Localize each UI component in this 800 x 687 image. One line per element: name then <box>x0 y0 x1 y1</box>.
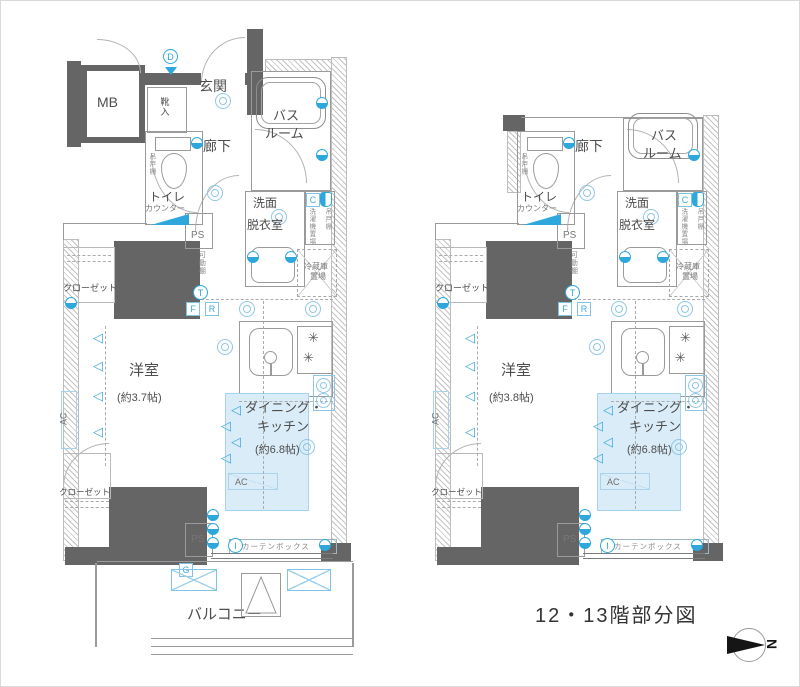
cone-icon: ◁ <box>593 451 603 464</box>
marker-f: F <box>558 302 572 316</box>
room-label-wash2: 脱衣室 <box>247 219 283 232</box>
ac-label: AC <box>235 477 248 487</box>
downlight-icon <box>320 192 332 207</box>
ceiling-light-icon <box>239 301 255 317</box>
room-label-bedroom: 洋室 <box>129 363 159 379</box>
marker-t: T <box>193 285 208 300</box>
evacuation-hatch-icon <box>241 573 281 617</box>
marker-i-label: I <box>234 541 237 551</box>
burner-icon: ✳ <box>303 351 314 364</box>
curtain-box-label: カーテンボックス <box>614 543 682 551</box>
wall-light-icon <box>579 509 591 521</box>
room-label-genkan: 玄関 <box>199 79 227 94</box>
wall-light-icon <box>207 509 219 521</box>
ac-wall-box: AC <box>433 391 449 449</box>
wall <box>437 547 483 565</box>
north-label: N <box>764 639 780 649</box>
partition-guide <box>477 326 478 466</box>
cone-icon: ◁ <box>93 331 103 344</box>
label-closet-lower: クローゼット <box>59 488 110 497</box>
north-arrow-icon <box>727 636 765 654</box>
counter-wedge-icon <box>151 214 189 225</box>
door-sensor-icon <box>165 67 177 75</box>
label-closet-upper: クローゼット <box>435 284 489 293</box>
room-label-dk1: ダイニング・ <box>617 401 695 415</box>
room-label-dk1: ダイニング・ <box>245 401 323 415</box>
boundary-line <box>435 223 436 240</box>
room-label-bath2: ルーム <box>265 127 304 141</box>
marker-c: C <box>678 193 692 207</box>
balcony-rail <box>352 563 354 647</box>
window <box>211 553 333 559</box>
label-hanging-shelf: 吊戸棚 <box>323 208 330 231</box>
burner-icon: ✳ <box>675 351 686 364</box>
ceiling-light-icon <box>207 185 223 201</box>
marker-r: R <box>577 302 591 316</box>
label-movable-shelf: 可動棚 <box>570 251 577 275</box>
faucet-stem <box>642 363 644 375</box>
label-bedroom-size: (約3.8帖) <box>489 393 534 405</box>
ceiling-light-icon <box>688 378 703 393</box>
mb-door-arc <box>97 39 141 73</box>
label-ps: PS <box>191 535 204 546</box>
room-label-hall: 廊下 <box>203 139 231 154</box>
marker-c-label: C <box>682 195 689 205</box>
marker-t-label: T <box>198 288 204 298</box>
marker-i: I <box>600 538 615 553</box>
downlight-icon <box>692 192 704 207</box>
room-label-bedroom: 洋室 <box>501 363 531 379</box>
ceiling-light-icon <box>671 439 687 455</box>
closet-shelf-line <box>437 507 481 508</box>
curtain-box-label: カーテンボックス <box>242 543 310 551</box>
balcony-line <box>151 638 353 639</box>
room-label-dk2: キッチン <box>257 420 309 434</box>
room-label-wash1: 洗面 <box>625 197 649 210</box>
plan-caption: 12・13階部分図 <box>535 599 698 628</box>
cone-icon: ◁ <box>231 435 241 448</box>
label-dk-size: (約6.8帖) <box>255 445 300 457</box>
wall-light-icon <box>579 523 591 535</box>
cone-icon: ◁ <box>221 419 231 432</box>
cone-icon: ◁ <box>231 403 241 416</box>
wall-light-icon <box>65 297 77 309</box>
wall-light-icon <box>691 539 703 551</box>
cone-icon: ◁ <box>93 425 103 438</box>
boundary-line <box>435 223 519 224</box>
ceiling-light-icon <box>305 301 321 317</box>
cone-icon: ◁ <box>93 359 103 372</box>
closet-shelf-line <box>67 261 111 262</box>
wall <box>65 547 111 565</box>
closet-shelf-line <box>65 501 109 502</box>
label-dk-size: (約6.8帖) <box>627 445 672 457</box>
ceiling-light-icon <box>215 93 231 109</box>
label-hanging-shelf: 吊戸棚 <box>147 153 154 176</box>
entrance-door-arc <box>201 37 245 83</box>
label-washer: 洗濯機置場 <box>307 208 314 246</box>
wall-light-icon <box>437 297 449 309</box>
window <box>583 553 705 559</box>
ac-wall-label: AC <box>432 412 441 425</box>
ceiling-light-icon <box>611 301 627 317</box>
room-label-wash2: 脱衣室 <box>619 219 655 232</box>
marker-i-label: I <box>606 541 609 551</box>
marker-t: T <box>565 285 580 300</box>
marker-f-label: F <box>190 304 196 314</box>
wall-light-icon <box>688 149 700 161</box>
wall-light-icon <box>191 137 203 149</box>
closet-shelf-line <box>437 501 481 502</box>
balcony-line <box>151 654 353 655</box>
room-label-shoebox: 靴入 <box>159 97 168 117</box>
marker-r-label: R <box>209 304 216 314</box>
wall-light-icon <box>207 537 219 549</box>
ceiling-light-icon <box>579 185 595 201</box>
ac-unit-box: AC <box>600 473 650 490</box>
wall-light-icon <box>207 523 219 535</box>
closet-shelf-line <box>65 507 109 508</box>
label-hanging-shelf: 吊戸棚 <box>519 153 526 176</box>
cone-icon: ◁ <box>465 359 475 372</box>
wall-light-icon <box>316 97 328 109</box>
room-label-toilet: トイレ <box>149 191 185 204</box>
cone-icon: ◁ <box>465 425 475 438</box>
marker-d: D <box>163 49 178 64</box>
ceiling-light-icon <box>677 301 693 317</box>
boundary-line <box>63 223 147 224</box>
burner-icon: ✳ <box>308 331 319 344</box>
exterior-wall-hatched <box>331 57 347 561</box>
wall-light-icon <box>247 251 259 263</box>
ac-unit-box: AC <box>228 473 278 490</box>
exterior-wall-hatched <box>703 115 719 561</box>
ac-wall-label: AC <box>60 412 69 425</box>
marker-i: I <box>228 538 243 553</box>
balcony-rail <box>95 563 97 647</box>
label-bedroom-size: (約3.7帖) <box>117 393 162 405</box>
room-label-hall: 廊下 <box>575 139 603 154</box>
label-counter: カウンター <box>517 205 557 213</box>
marker-d-label: D <box>167 52 174 62</box>
label-washer: 洗濯機置場 <box>679 208 686 246</box>
ceiling-light-icon <box>299 439 315 455</box>
marker-t-label: T <box>570 288 576 298</box>
wall-light-icon <box>579 537 591 549</box>
room-label-dk2: キッチン <box>629 420 681 434</box>
wall-light-icon <box>563 137 575 149</box>
wall-light-icon <box>619 251 631 263</box>
ceiling-guide <box>573 299 705 300</box>
label-fridge1: 冷蔵庫 <box>676 263 700 271</box>
room-label-wash1: 洗面 <box>253 197 277 210</box>
room-label-bath1: バス <box>651 129 677 143</box>
wall-light-icon <box>285 251 297 263</box>
marker-c: C <box>306 193 320 207</box>
marker-f: F <box>186 302 200 316</box>
cone-icon: ◁ <box>593 419 603 432</box>
label-fridge1: 冷蔵庫 <box>304 263 328 271</box>
label-ps: PS <box>563 535 576 546</box>
closet-shelf-line <box>439 255 483 256</box>
label-fridge2: 置場 <box>310 273 326 281</box>
balcony-equipment-icon <box>287 569 331 591</box>
counter-wedge-icon <box>523 214 561 225</box>
label-ps: PS <box>191 231 204 242</box>
marker-f-label: F <box>562 304 568 314</box>
wall-light-icon <box>316 149 328 161</box>
room-label-bath2: ルーム <box>643 147 682 161</box>
label-fridge2: 置場 <box>682 273 698 281</box>
balcony-line <box>151 646 353 647</box>
label-counter: カウンター <box>145 205 185 213</box>
room-label-mb: MB <box>97 95 118 110</box>
ac-wall-box: AC <box>61 391 77 449</box>
toilet-tank <box>527 137 563 151</box>
floorplan-sheet: ✳ ✳ AC AC カーテンボックス <box>0 0 800 687</box>
boundary-line <box>63 223 64 240</box>
cone-icon: ◁ <box>465 331 475 344</box>
wall <box>67 61 81 147</box>
ceiling-guide <box>201 299 333 300</box>
ceiling-light-icon <box>217 339 233 355</box>
ac-label: AC <box>607 477 620 487</box>
room-label-bath1: バス <box>273 109 299 123</box>
partition-guide <box>105 326 106 466</box>
balcony-equipment-icon <box>171 569 217 591</box>
cone-icon: ◁ <box>603 403 613 416</box>
label-hanging-shelf: 吊戸棚 <box>695 208 702 231</box>
label-closet-upper: クローゼット <box>63 284 117 293</box>
faucet-stem <box>270 363 272 375</box>
cone-icon: ◁ <box>221 451 231 464</box>
label-closet-lower: クローゼット <box>431 488 482 497</box>
closet-shelf-line <box>439 261 483 262</box>
label-movable-shelf: 可動棚 <box>198 251 205 275</box>
closet-shelf-line <box>67 255 111 256</box>
marker-c-label: C <box>310 195 317 205</box>
label-ps: PS <box>563 231 576 242</box>
marker-r: R <box>205 302 219 316</box>
toilet-tank <box>155 137 191 151</box>
balcony-line <box>97 561 353 562</box>
wall-light-icon <box>319 539 331 551</box>
room-label-toilet: トイレ <box>521 191 557 204</box>
burner-icon: ✳ <box>680 331 691 344</box>
cone-icon: ◁ <box>93 389 103 402</box>
wall-light-icon <box>657 251 669 263</box>
marker-r-label: R <box>581 304 588 314</box>
ceiling-light-icon <box>316 378 331 393</box>
cone-icon: ◁ <box>603 435 613 448</box>
ceiling-light-icon <box>589 339 605 355</box>
cone-icon: ◁ <box>465 389 475 402</box>
